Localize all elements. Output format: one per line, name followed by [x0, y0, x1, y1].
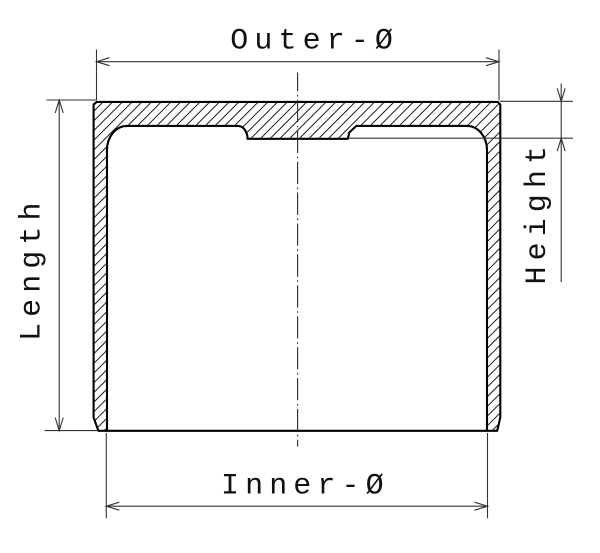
svg-text:Height: Height [521, 140, 555, 285]
svg-text:Length: Length [15, 196, 49, 341]
svg-text:Outer-Ø: Outer-Ø [230, 25, 399, 59]
svg-text:Inner-Ø: Inner-Ø [221, 469, 390, 503]
